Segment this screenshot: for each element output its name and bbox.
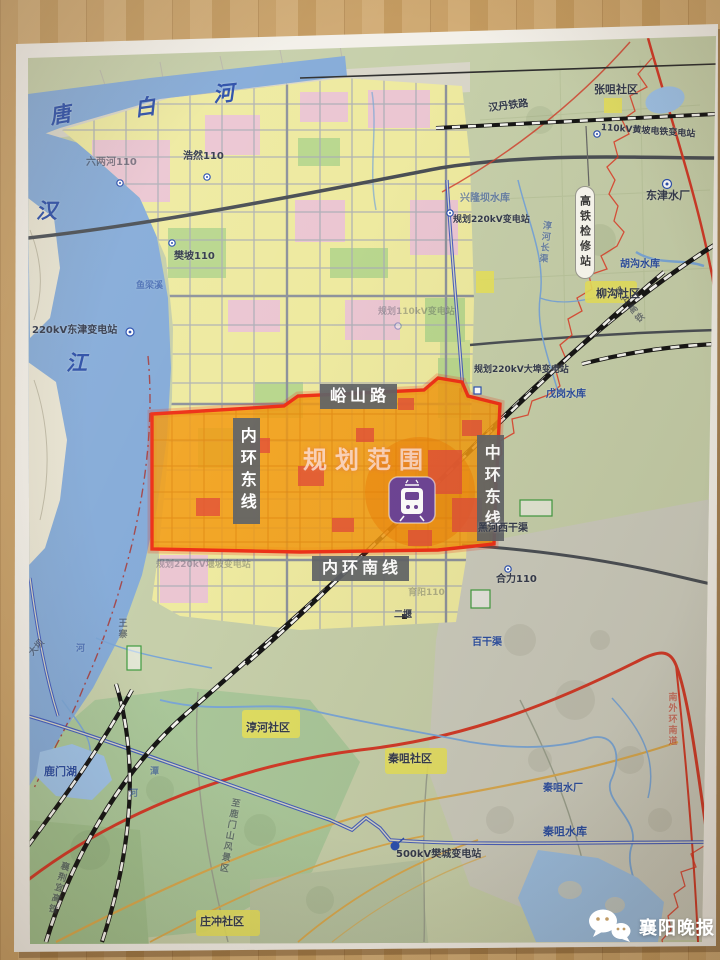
map-content — [0, 0, 720, 960]
watermark: 襄阳晚报 — [588, 908, 715, 946]
watermark-text: 襄阳晚报 — [639, 914, 715, 940]
photo-of-planning-map: 唐白河汉江六两河110浩然110樊坡110鱼梁溪220kV东津变电站规划110k… — [0, 0, 720, 960]
map-artwork — [0, 0, 720, 960]
wechat-icon — [588, 908, 632, 946]
metro-train-icon — [389, 477, 435, 523]
